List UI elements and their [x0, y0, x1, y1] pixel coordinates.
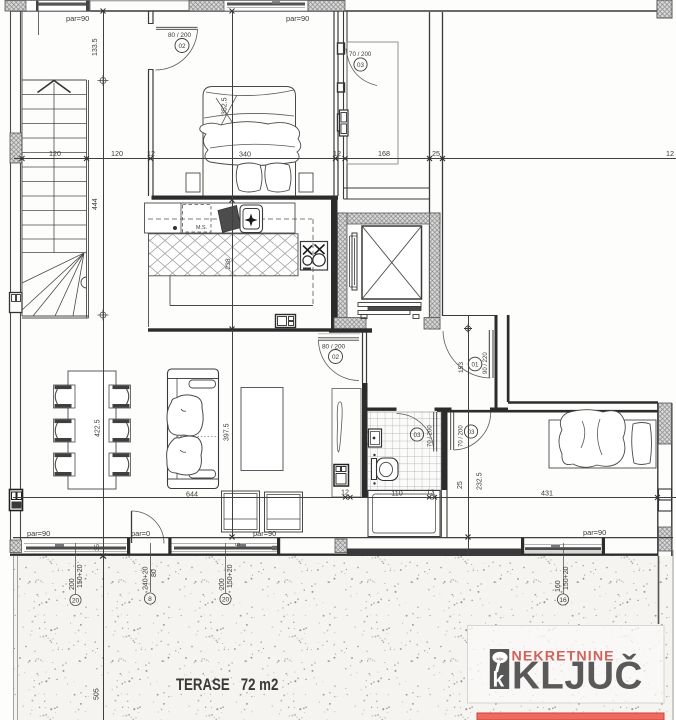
svg-text:200: 200 — [69, 578, 76, 590]
svg-text:160: 160 — [555, 580, 562, 592]
svg-text:M.S.: M.S. — [196, 225, 207, 231]
svg-text:70 / 200: 70 / 200 — [428, 425, 434, 447]
svg-text:150+20: 150+20 — [563, 566, 570, 590]
svg-text:03: 03 — [357, 62, 364, 69]
svg-text:168: 168 — [378, 149, 390, 158]
svg-text:12: 12 — [666, 149, 674, 158]
svg-text:352.5: 352.5 — [222, 97, 229, 115]
svg-text:340: 340 — [239, 150, 251, 159]
svg-text:150+20: 150+20 — [77, 564, 84, 588]
svg-text:422.5: 422.5 — [95, 419, 102, 437]
svg-text:120: 120 — [49, 149, 61, 158]
svg-text:03: 03 — [414, 432, 421, 439]
svg-text:25: 25 — [457, 481, 464, 489]
svg-text:12: 12 — [333, 149, 341, 158]
svg-text:232.5: 232.5 — [477, 472, 484, 490]
svg-text:20: 20 — [222, 597, 230, 604]
svg-text:35: 35 — [94, 544, 101, 551]
svg-text:200: 200 — [219, 578, 226, 590]
svg-text:par=90: par=90 — [286, 14, 309, 23]
svg-text:133.5: 133.5 — [92, 38, 99, 56]
svg-text:644: 644 — [186, 490, 198, 499]
svg-text:70 / 200: 70 / 200 — [349, 51, 372, 58]
svg-text:80 / 200: 80 / 200 — [168, 32, 192, 39]
svg-text:KLJUČ: KLJUČ — [512, 653, 643, 698]
svg-text:klju: klju — [497, 656, 504, 661]
svg-text:90 / 220: 90 / 220 — [483, 352, 489, 374]
svg-text:120: 120 — [111, 149, 123, 158]
svg-text:5: 5 — [235, 542, 242, 546]
svg-text:k: k — [493, 669, 505, 692]
svg-text:12: 12 — [341, 488, 349, 497]
svg-text:25: 25 — [432, 149, 440, 158]
svg-text:16: 16 — [559, 597, 567, 604]
svg-text:12: 12 — [147, 149, 155, 158]
svg-text:20: 20 — [72, 598, 80, 605]
svg-text:par=90: par=90 — [27, 529, 50, 538]
svg-text:02: 02 — [178, 43, 186, 50]
svg-text:153: 153 — [458, 362, 465, 373]
svg-text:150+20: 150+20 — [227, 564, 234, 588]
svg-text:01: 01 — [472, 362, 479, 369]
svg-text:8: 8 — [148, 596, 152, 603]
svg-text:240+20: 240+20 — [143, 566, 150, 590]
svg-text:par=0: par=0 — [131, 529, 150, 538]
svg-text:par=90: par=90 — [66, 14, 89, 23]
svg-text:397.5: 397.5 — [224, 423, 231, 441]
svg-text:70 / 200: 70 / 200 — [459, 425, 465, 447]
svg-text:80: 80 — [151, 569, 158, 577]
svg-text:02: 02 — [332, 354, 340, 361]
svg-text:par=90: par=90 — [583, 528, 606, 537]
svg-text:TERASE 72 m2: TERASE 72 m2 — [176, 676, 278, 695]
svg-text:110: 110 — [391, 489, 402, 498]
svg-text:13: 13 — [427, 488, 435, 497]
svg-text:444: 444 — [92, 198, 99, 210]
svg-text:238: 238 — [225, 258, 232, 270]
svg-text:par=90: par=90 — [253, 529, 276, 538]
svg-text:431: 431 — [541, 489, 553, 498]
svg-text:505: 505 — [94, 688, 101, 700]
